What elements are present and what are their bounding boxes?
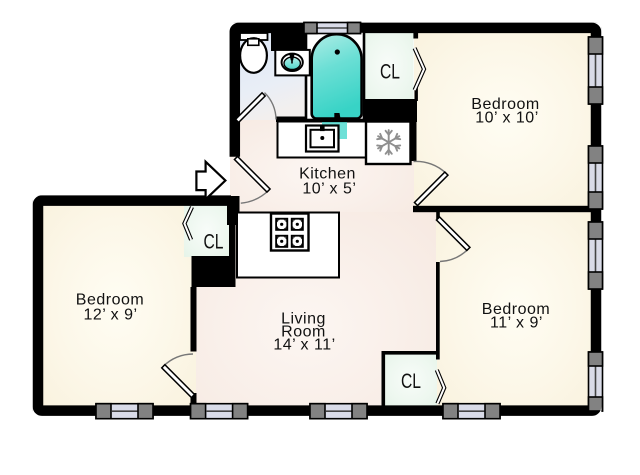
svg-text:10’ x 10’: 10’ x 10’: [475, 109, 539, 126]
svg-text:11’ x 9’: 11’ x 9’: [490, 314, 543, 331]
svg-text:CL: CL: [380, 61, 400, 84]
svg-text:12’ x 9’: 12’ x 9’: [83, 307, 137, 324]
svg-text:CL: CL: [401, 370, 421, 393]
svg-text:CL: CL: [204, 231, 224, 254]
svg-text:10’ x 5’: 10’ x 5’: [302, 180, 356, 197]
svg-text:14’ x 11’: 14’ x 11’: [273, 337, 335, 354]
